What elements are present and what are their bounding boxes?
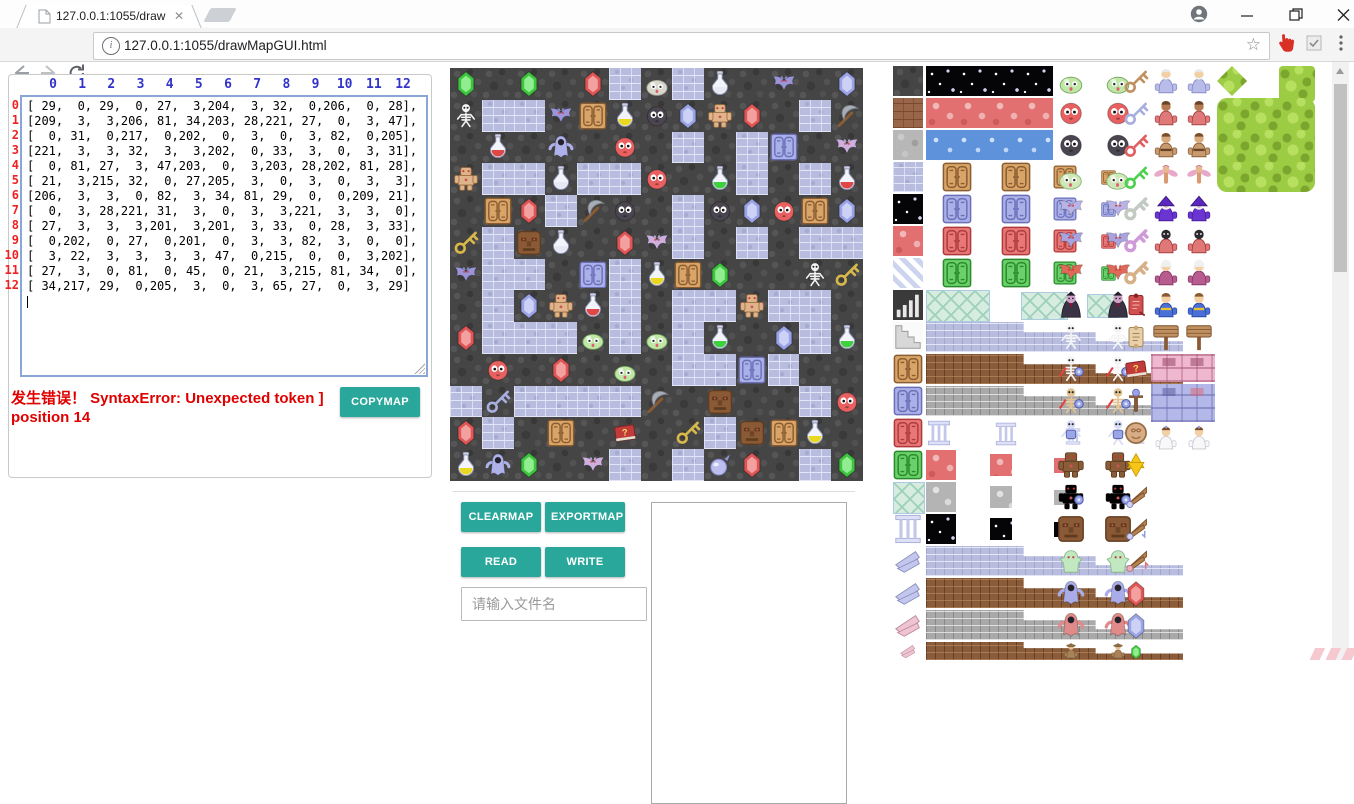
- tileset-cell-night[interactable]: [926, 514, 956, 544]
- map-tile[interactable]: [831, 195, 863, 227]
- map-tile[interactable]: [514, 227, 546, 259]
- tileset-cell-slime_green[interactable]: [1056, 66, 1086, 96]
- maximize-button[interactable]: [1280, 6, 1310, 24]
- tileset-cell-bat_big[interactable]: [1056, 226, 1086, 256]
- map-tile[interactable]: [736, 259, 768, 291]
- map-tile[interactable]: [831, 227, 863, 259]
- map-tile[interactable]: [609, 386, 641, 418]
- tileset-cell-floor_red[interactable]: [893, 226, 923, 256]
- map-tile[interactable]: [736, 386, 768, 418]
- tileset-cell-priest_dark[interactable]: [1184, 226, 1214, 256]
- map-tile[interactable]: [736, 100, 768, 132]
- map-tile[interactable]: [704, 449, 736, 481]
- map-tile[interactable]: [482, 417, 514, 449]
- tileset-cell-wall_lav[interactable]: [1151, 384, 1215, 422]
- map-tile[interactable]: [768, 322, 800, 354]
- tileset-cell-slime_big[interactable]: [1054, 162, 1087, 192]
- tileset-cell-wing3[interactable]: [1122, 546, 1150, 576]
- map-tile[interactable]: [704, 100, 736, 132]
- map-tile[interactable]: [768, 259, 800, 291]
- map-tile[interactable]: [609, 290, 641, 322]
- tileset-cell-ghost_blue[interactable]: [1056, 578, 1086, 608]
- map-tile[interactable]: [641, 68, 673, 100]
- map-tile[interactable]: [704, 195, 736, 227]
- map-tile[interactable]: [577, 195, 609, 227]
- tileset-cell-key_blue[interactable]: [1122, 100, 1150, 128]
- tileset-cell-ghost_red[interactable]: [1056, 610, 1086, 640]
- tileset-cell-elder[interactable]: [1184, 98, 1214, 128]
- menu-dots-icon[interactable]: [1334, 33, 1348, 53]
- tileset-cell-bat_sm[interactable]: [1056, 194, 1086, 224]
- tileset-cell-fighter[interactable]: [1151, 130, 1181, 160]
- map-tile[interactable]: [736, 322, 768, 354]
- tileset-cell-priest_dark[interactable]: [1151, 226, 1181, 256]
- tileset-cell-door_tan[interactable]: [926, 162, 988, 192]
- map-tile[interactable]: [831, 290, 863, 322]
- tileset-cell-scroll_red[interactable]: [1122, 290, 1150, 320]
- map-tile[interactable]: [799, 132, 831, 164]
- map-tile[interactable]: [768, 417, 800, 449]
- map-tile[interactable]: [736, 163, 768, 195]
- map-tile[interactable]: [577, 417, 609, 449]
- map-tile[interactable]: [577, 100, 609, 132]
- map-tile[interactable]: [799, 449, 831, 481]
- tileset-cell-door_tan[interactable]: [893, 354, 923, 384]
- tileset-cell-fighter[interactable]: [1184, 130, 1214, 160]
- map-tile[interactable]: [799, 163, 831, 195]
- map-tile[interactable]: [482, 322, 514, 354]
- map-tile[interactable]: [641, 259, 673, 291]
- map-canvas[interactable]: ?: [450, 68, 863, 481]
- checkbox-extension-icon[interactable]: [1306, 35, 1322, 51]
- map-tile[interactable]: [799, 259, 831, 291]
- map-tile[interactable]: [514, 386, 546, 418]
- tileset-cell-hero[interactable]: [1184, 290, 1214, 320]
- tileset-cell-sign[interactable]: [1151, 322, 1181, 352]
- tileset-cell-forest[interactable]: [1217, 98, 1315, 192]
- map-tile[interactable]: [641, 322, 673, 354]
- tileset-cell-star[interactable]: [1122, 450, 1150, 480]
- bookmark-star-icon[interactable]: ☆: [1246, 35, 1261, 55]
- map-tile[interactable]: [450, 195, 482, 227]
- tileset-cell-tiki[interactable]: [1056, 514, 1086, 544]
- tileset-cell-tree_sq[interactable]: [1279, 66, 1315, 102]
- tileset-cell-hero[interactable]: [1151, 290, 1181, 320]
- map-tile[interactable]: [672, 132, 704, 164]
- map-tile[interactable]: [450, 259, 482, 291]
- map-tile[interactable]: [609, 354, 641, 386]
- map-tile[interactable]: [641, 290, 673, 322]
- map-tile[interactable]: [768, 195, 800, 227]
- map-tile[interactable]: [545, 290, 577, 322]
- map-tile[interactable]: [545, 449, 577, 481]
- tileset-cell-pillar[interactable]: [926, 418, 952, 448]
- map-tile[interactable]: [831, 163, 863, 195]
- map-tile[interactable]: [736, 68, 768, 100]
- map-tile[interactable]: [514, 417, 546, 449]
- map-tile[interactable]: [514, 354, 546, 386]
- tileset-cell-floor_red[interactable]: [990, 454, 1012, 476]
- map-tile[interactable]: [768, 354, 800, 386]
- map-tile[interactable]: [672, 163, 704, 195]
- map-tile[interactable]: [736, 290, 768, 322]
- tileset-cell-door_green[interactable]: [893, 450, 923, 480]
- map-tile[interactable]: [609, 163, 641, 195]
- tileset-cell-princess[interactable]: [1184, 424, 1214, 452]
- map-tile[interactable]: [672, 290, 704, 322]
- tileset-cell-vampire[interactable]: [1056, 290, 1086, 320]
- tileset-cell-wizard[interactable]: [1151, 194, 1181, 224]
- tileset-cell-wizard[interactable]: [1184, 194, 1214, 224]
- tileset-cell-door_lav[interactable]: [926, 194, 988, 224]
- tileset-cell-floor_gray2[interactable]: [990, 486, 1012, 508]
- tileset-cell-key_green[interactable]: [1122, 164, 1150, 192]
- tileset-cell-wing_pink[interactable]: [893, 642, 923, 660]
- map-tile[interactable]: [609, 132, 641, 164]
- tileset-cell-key_big_gray[interactable]: [1122, 194, 1150, 224]
- map-tile[interactable]: [768, 290, 800, 322]
- map-tile[interactable]: [641, 100, 673, 132]
- map-tile[interactable]: [641, 195, 673, 227]
- map-tile[interactable]: [831, 386, 863, 418]
- tileset-cell-floor_red[interactable]: [926, 98, 1053, 128]
- map-tile[interactable]: [609, 100, 641, 132]
- map-tile[interactable]: [450, 386, 482, 418]
- tileset-cell-door_lav[interactable]: [893, 386, 923, 416]
- tileset-cell-hatman[interactable]: [1056, 642, 1086, 660]
- map-tile[interactable]: [672, 354, 704, 386]
- map-tile[interactable]: [736, 132, 768, 164]
- page-info-icon[interactable]: i: [102, 37, 120, 55]
- tileset-cell-door_green[interactable]: [926, 258, 988, 288]
- tileset-cell-tree_diamond[interactable]: [1217, 66, 1247, 96]
- map-tile[interactable]: [514, 100, 546, 132]
- tileset-cell-oldman[interactable]: [1151, 66, 1181, 96]
- map-tile[interactable]: [641, 449, 673, 481]
- map-tile[interactable]: [672, 417, 704, 449]
- map-tile[interactable]: [514, 449, 546, 481]
- map-tile[interactable]: [482, 68, 514, 100]
- map-tile[interactable]: [736, 227, 768, 259]
- scrollbar-thumb[interactable]: [1334, 84, 1347, 272]
- tileset-cell-gem_blue[interactable]: [1122, 612, 1150, 640]
- tileset-cell-oldman[interactable]: [1184, 66, 1214, 96]
- map-tile[interactable]: [545, 195, 577, 227]
- map-tile[interactable]: [768, 386, 800, 418]
- map-tile[interactable]: [799, 290, 831, 322]
- exportmap-button[interactable]: EXPORTMAP: [545, 502, 625, 532]
- page-scrollbar[interactable]: [1332, 62, 1349, 660]
- map-tile[interactable]: [514, 68, 546, 100]
- map-tile[interactable]: [450, 290, 482, 322]
- map-tile[interactable]: [450, 68, 482, 100]
- tileset-cell-wall_pink[interactable]: [1151, 354, 1215, 382]
- map-tile[interactable]: [450, 163, 482, 195]
- tileset-cell-door_red[interactable]: [1001, 226, 1031, 256]
- tileset-cell-night[interactable]: [893, 194, 923, 224]
- address-bar[interactable]: i 127.0.0.1:1055/drawMapGUI.html ☆: [93, 32, 1270, 60]
- tileset-cell-door_green[interactable]: [1001, 258, 1031, 288]
- textarea-resize-grip[interactable]: [414, 363, 425, 374]
- map-tile[interactable]: [482, 386, 514, 418]
- map-tile[interactable]: [641, 417, 673, 449]
- map-tile[interactable]: [672, 386, 704, 418]
- map-tile[interactable]: [609, 449, 641, 481]
- map-tile[interactable]: [704, 163, 736, 195]
- map-tile[interactable]: [672, 322, 704, 354]
- map-tile[interactable]: [641, 163, 673, 195]
- tileset-cell-key_big_tan[interactable]: [1122, 258, 1150, 288]
- map-tile[interactable]: [831, 449, 863, 481]
- map-tile[interactable]: [545, 163, 577, 195]
- map-tile[interactable]: [514, 132, 546, 164]
- map-tile[interactable]: [577, 132, 609, 164]
- map-tile[interactable]: [609, 195, 641, 227]
- map-tile[interactable]: [545, 259, 577, 291]
- map-tile[interactable]: [609, 259, 641, 291]
- map-tile[interactable]: [672, 227, 704, 259]
- map-tile[interactable]: [450, 227, 482, 259]
- map-tile[interactable]: [482, 259, 514, 291]
- tileset-cell-door_lav[interactable]: [1001, 194, 1031, 224]
- map-tile[interactable]: [545, 227, 577, 259]
- map-tile[interactable]: [799, 68, 831, 100]
- tileset-cell-princess[interactable]: [1151, 424, 1181, 452]
- map-tile[interactable]: [545, 132, 577, 164]
- map-tile[interactable]: [736, 417, 768, 449]
- tileset-cell-wing_lav[interactable]: [893, 578, 923, 608]
- map-tile[interactable]: [672, 195, 704, 227]
- scrollbar-up-arrow-icon[interactable]: [1336, 68, 1344, 74]
- map-tile[interactable]: [641, 386, 673, 418]
- map-tile[interactable]: [831, 259, 863, 291]
- map-tile[interactable]: [672, 449, 704, 481]
- tileset-cell-priest_white[interactable]: [1151, 258, 1181, 288]
- map-tile[interactable]: [514, 290, 546, 322]
- map-tile[interactable]: [768, 163, 800, 195]
- map-tile[interactable]: [577, 227, 609, 259]
- map-tile[interactable]: [641, 132, 673, 164]
- read-button[interactable]: READ: [461, 547, 541, 577]
- tileset-cell-steps_gray[interactable]: [893, 322, 923, 352]
- tileset-cell-skel_blue[interactable]: [1056, 418, 1086, 448]
- map-tile[interactable]: [831, 100, 863, 132]
- map-tile[interactable]: [799, 195, 831, 227]
- tileset-cell-priest_white[interactable]: [1184, 258, 1214, 288]
- write-button[interactable]: WRITE: [545, 547, 625, 577]
- minimize-button[interactable]: [1232, 6, 1262, 24]
- tileset-cell-key_red[interactable]: [1122, 132, 1150, 160]
- map-tile[interactable]: [545, 386, 577, 418]
- map-tile[interactable]: [545, 68, 577, 100]
- map-tile[interactable]: [831, 68, 863, 100]
- map-tile[interactable]: [482, 449, 514, 481]
- tileset-cell-gem_green[interactable]: [1122, 644, 1150, 660]
- tileset-cell-door_red[interactable]: [893, 418, 923, 448]
- tileset-cell-staff[interactable]: [1122, 386, 1150, 416]
- tileset-cell-sign[interactable]: [1184, 322, 1214, 352]
- map-tile[interactable]: [799, 322, 831, 354]
- corner-logo-fragment: [1306, 646, 1354, 660]
- map-tile[interactable]: [482, 227, 514, 259]
- map-tile[interactable]: [450, 354, 482, 386]
- tileset-cell-ape_shield[interactable]: g fill="#8a5c38" stroke="#5f3d20">: [1056, 482, 1086, 512]
- map-tile[interactable]: [577, 259, 609, 291]
- map-tile[interactable]: [482, 100, 514, 132]
- tileset-cell-bat_red[interactable]: [1056, 258, 1086, 288]
- map-tile[interactable]: [704, 132, 736, 164]
- tileset-cell-door_red[interactable]: [926, 226, 988, 256]
- map-tile[interactable]: [450, 417, 482, 449]
- map-tile[interactable]: [577, 163, 609, 195]
- map-tile[interactable]: [609, 68, 641, 100]
- map-tile[interactable]: [704, 68, 736, 100]
- tileset-cell-ice[interactable]: [893, 482, 925, 514]
- tileset-cell-wing2[interactable]: [1122, 514, 1150, 544]
- url-text[interactable]: 127.0.0.1:1055/drawMapGUI.html: [124, 38, 327, 53]
- tileset-cell-floor_gray2[interactable]: [926, 482, 956, 512]
- map-tile[interactable]: [450, 132, 482, 164]
- map-tile[interactable]: [514, 195, 546, 227]
- tileset-cell-fairy[interactable]: [1184, 162, 1214, 192]
- tileset-cell-pillar[interactable]: [988, 422, 1024, 446]
- map-tile[interactable]: [672, 100, 704, 132]
- map-tile[interactable]: [450, 322, 482, 354]
- map-tile[interactable]: [768, 449, 800, 481]
- tileset-cell-skel_arm[interactable]: [1056, 354, 1086, 384]
- map-tile[interactable]: [831, 132, 863, 164]
- map-tile[interactable]: [768, 68, 800, 100]
- tileset-cell-brick_brown[interactable]: [893, 98, 923, 128]
- map-tile[interactable]: [577, 354, 609, 386]
- tileset-cell-ape[interactable]: [1056, 450, 1086, 480]
- map-tile[interactable]: [799, 417, 831, 449]
- tileset-cell-stripes[interactable]: [893, 258, 923, 288]
- map-tile[interactable]: [577, 68, 609, 100]
- map-tile[interactable]: [577, 322, 609, 354]
- map-tile[interactable]: [704, 354, 736, 386]
- tileset-cell-slimeman[interactable]: [1056, 546, 1086, 576]
- map-tile[interactable]: [482, 132, 514, 164]
- map-tile[interactable]: [545, 417, 577, 449]
- tileset-cell-night[interactable]: [990, 518, 1012, 540]
- tileset-cell-gem_red[interactable]: [1122, 580, 1150, 608]
- new-tab-button[interactable]: [203, 8, 236, 22]
- tileset-cell-stairs_dark[interactable]: [893, 290, 923, 320]
- tileset-cell-night[interactable]: [926, 66, 1053, 96]
- filename-input[interactable]: [461, 587, 647, 621]
- tileset-cell-book[interactable]: ?: [1122, 354, 1150, 384]
- map-tile[interactable]: [736, 449, 768, 481]
- map-tile[interactable]: ?: [609, 417, 641, 449]
- map-tile[interactable]: [768, 132, 800, 164]
- copymap-button[interactable]: COPYMAP: [340, 387, 420, 417]
- map-tile[interactable]: [514, 322, 546, 354]
- tileset-palette[interactable]: g fill="#8a5c38" stroke="#5f3d20">g fill…: [893, 66, 1330, 660]
- browser-tab[interactable]: 127.0.0.1:1055/drawMa ✕: [30, 5, 188, 28]
- tileset-cell-key_tan[interactable]: [1122, 68, 1150, 96]
- map-tile[interactable]: [736, 195, 768, 227]
- map-tile[interactable]: [768, 100, 800, 132]
- tileset-cell-coin[interactable]: [1122, 418, 1150, 448]
- map-tile[interactable]: [799, 100, 831, 132]
- tileset-cell-door_tan[interactable]: [1001, 162, 1031, 192]
- tileset-cell-fairy[interactable]: [1151, 162, 1181, 192]
- tileset-cell-ball_red[interactable]: [1056, 98, 1086, 128]
- tileset-cell-scroll_tan[interactable]: [1122, 322, 1150, 352]
- map-tile[interactable]: [704, 290, 736, 322]
- matrix-row-header: 2: [3, 128, 19, 143]
- map-tile[interactable]: [641, 354, 673, 386]
- tileset-cell-pillar[interactable]: [893, 514, 923, 544]
- map-tile[interactable]: [514, 163, 546, 195]
- map-tile[interactable]: [704, 386, 736, 418]
- map-tile[interactable]: [482, 195, 514, 227]
- map-tile[interactable]: [609, 227, 641, 259]
- clearmap-button[interactable]: CLEARMAP: [461, 502, 541, 532]
- profile-icon[interactable]: [1190, 5, 1208, 23]
- tileset-cell-skeleton[interactable]: [1056, 322, 1086, 352]
- tileset-cell-cobble_dark[interactable]: [893, 66, 923, 96]
- map-tile[interactable]: [482, 290, 514, 322]
- tileset-cell-wing_pink[interactable]: [893, 610, 923, 640]
- tileset-cell-key_big_purple[interactable]: [1122, 226, 1150, 256]
- matrix-textarea[interactable]: [ 29, 0, 29, 0, 27, 3,204, 3, 32, 0,206,…: [20, 95, 428, 377]
- tileset-cell-brick_lav[interactable]: [893, 162, 923, 192]
- tab-close-icon[interactable]: ✕: [172, 9, 186, 23]
- adblock-extension-icon[interactable]: [1276, 31, 1298, 55]
- map-tile[interactable]: [704, 417, 736, 449]
- tileset-cell-floor_red[interactable]: [926, 450, 956, 480]
- map-tile[interactable]: [704, 322, 736, 354]
- tileset-cell-skel_tan[interactable]: [1056, 386, 1086, 416]
- map-tile[interactable]: [736, 354, 768, 386]
- map-tile[interactable]: [831, 322, 863, 354]
- map-tile[interactable]: [768, 227, 800, 259]
- tileset-cell-ice[interactable]: [926, 290, 990, 322]
- map-tile[interactable]: [577, 449, 609, 481]
- map-tile[interactable]: [672, 259, 704, 291]
- map-tile[interactable]: [609, 322, 641, 354]
- map-tile[interactable]: [450, 100, 482, 132]
- map-tile[interactable]: [799, 386, 831, 418]
- map-tile[interactable]: [545, 354, 577, 386]
- map-tile[interactable]: [514, 259, 546, 291]
- map-tile[interactable]: [704, 259, 736, 291]
- map-tile[interactable]: [831, 354, 863, 386]
- map-tile[interactable]: [799, 354, 831, 386]
- tileset-cell-cobble_gray[interactable]: [893, 130, 923, 160]
- map-tile[interactable]: [641, 227, 673, 259]
- map-tile[interactable]: [799, 227, 831, 259]
- map-tile[interactable]: [704, 227, 736, 259]
- tileset-cell-wing_lav[interactable]: [893, 546, 923, 576]
- map-tile[interactable]: [577, 386, 609, 418]
- map-tile[interactable]: [482, 163, 514, 195]
- map-tile[interactable]: [831, 417, 863, 449]
- map-tile[interactable]: [450, 449, 482, 481]
- map-tile[interactable]: [545, 322, 577, 354]
- close-window-button[interactable]: [1328, 6, 1354, 24]
- tileset-cell-wing1[interactable]: [1122, 482, 1150, 512]
- tileset-cell-elder[interactable]: [1151, 98, 1181, 128]
- map-tile[interactable]: [672, 68, 704, 100]
- map-tile[interactable]: [545, 100, 577, 132]
- tileset-cell-water[interactable]: [926, 130, 1053, 160]
- map-tile[interactable]: [482, 354, 514, 386]
- tileset-cell-ball_dark[interactable]: [1056, 130, 1086, 160]
- map-tile[interactable]: [577, 290, 609, 322]
